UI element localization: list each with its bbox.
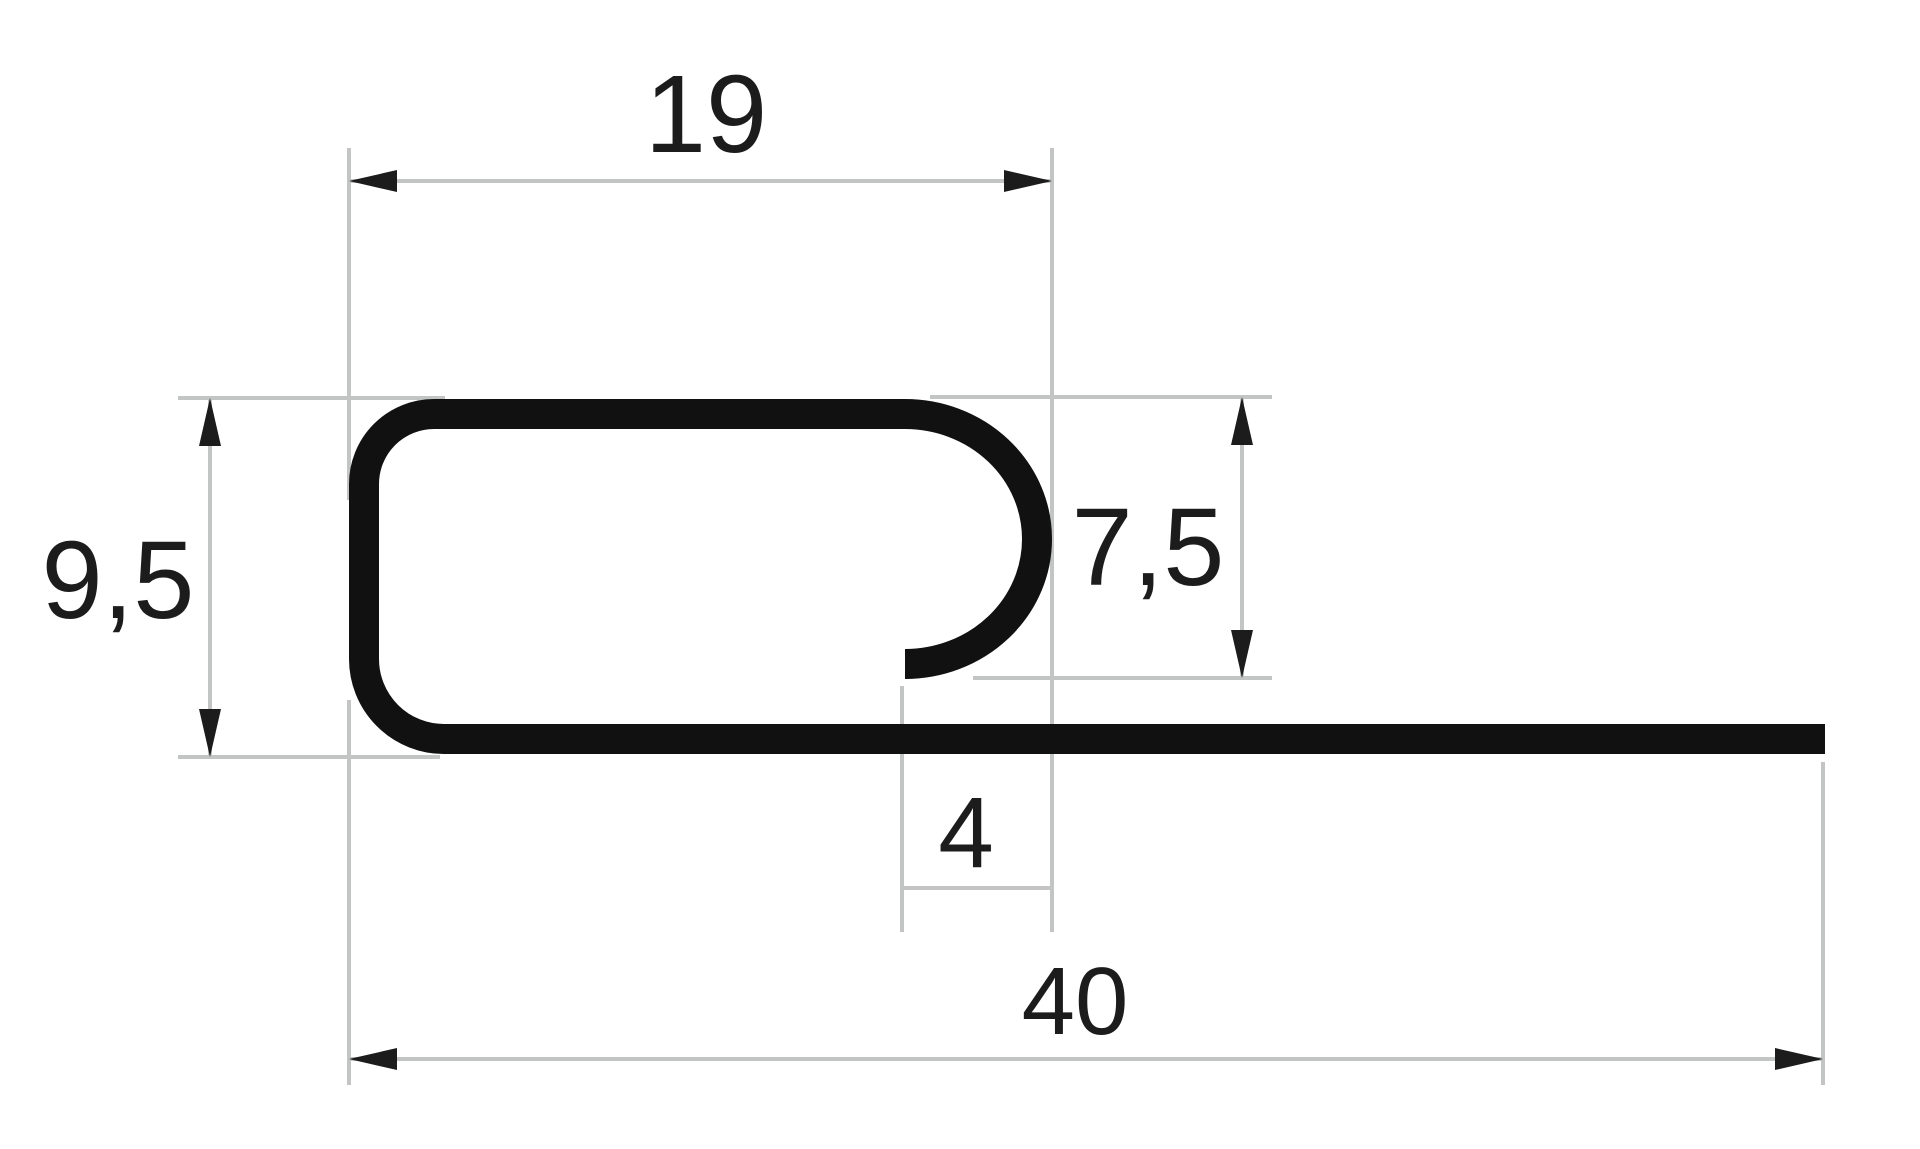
- dim-label-left-height: 9,5: [42, 519, 195, 642]
- dim-label-total-width: 40: [1022, 948, 1129, 1055]
- arrow-left-icon: [349, 1048, 397, 1070]
- arrow-up-icon: [199, 398, 221, 446]
- dim-label-opening: 4: [938, 777, 994, 889]
- arrow-right-icon: [1775, 1048, 1823, 1070]
- arrow-left-icon: [349, 170, 397, 192]
- arrow-down-icon: [1231, 630, 1253, 678]
- technical-drawing-canvas: 19 9,5 7,5 4 40: [0, 0, 1920, 1149]
- arrow-right-icon: [1004, 170, 1052, 192]
- arrow-down-icon: [199, 709, 221, 757]
- dim-label-top-width: 19: [645, 53, 767, 176]
- dim-label-right-height: 7,5: [1072, 486, 1225, 609]
- profile-drawing: 19 9,5 7,5 4 40: [0, 0, 1920, 1149]
- arrow-up-icon: [1231, 397, 1253, 445]
